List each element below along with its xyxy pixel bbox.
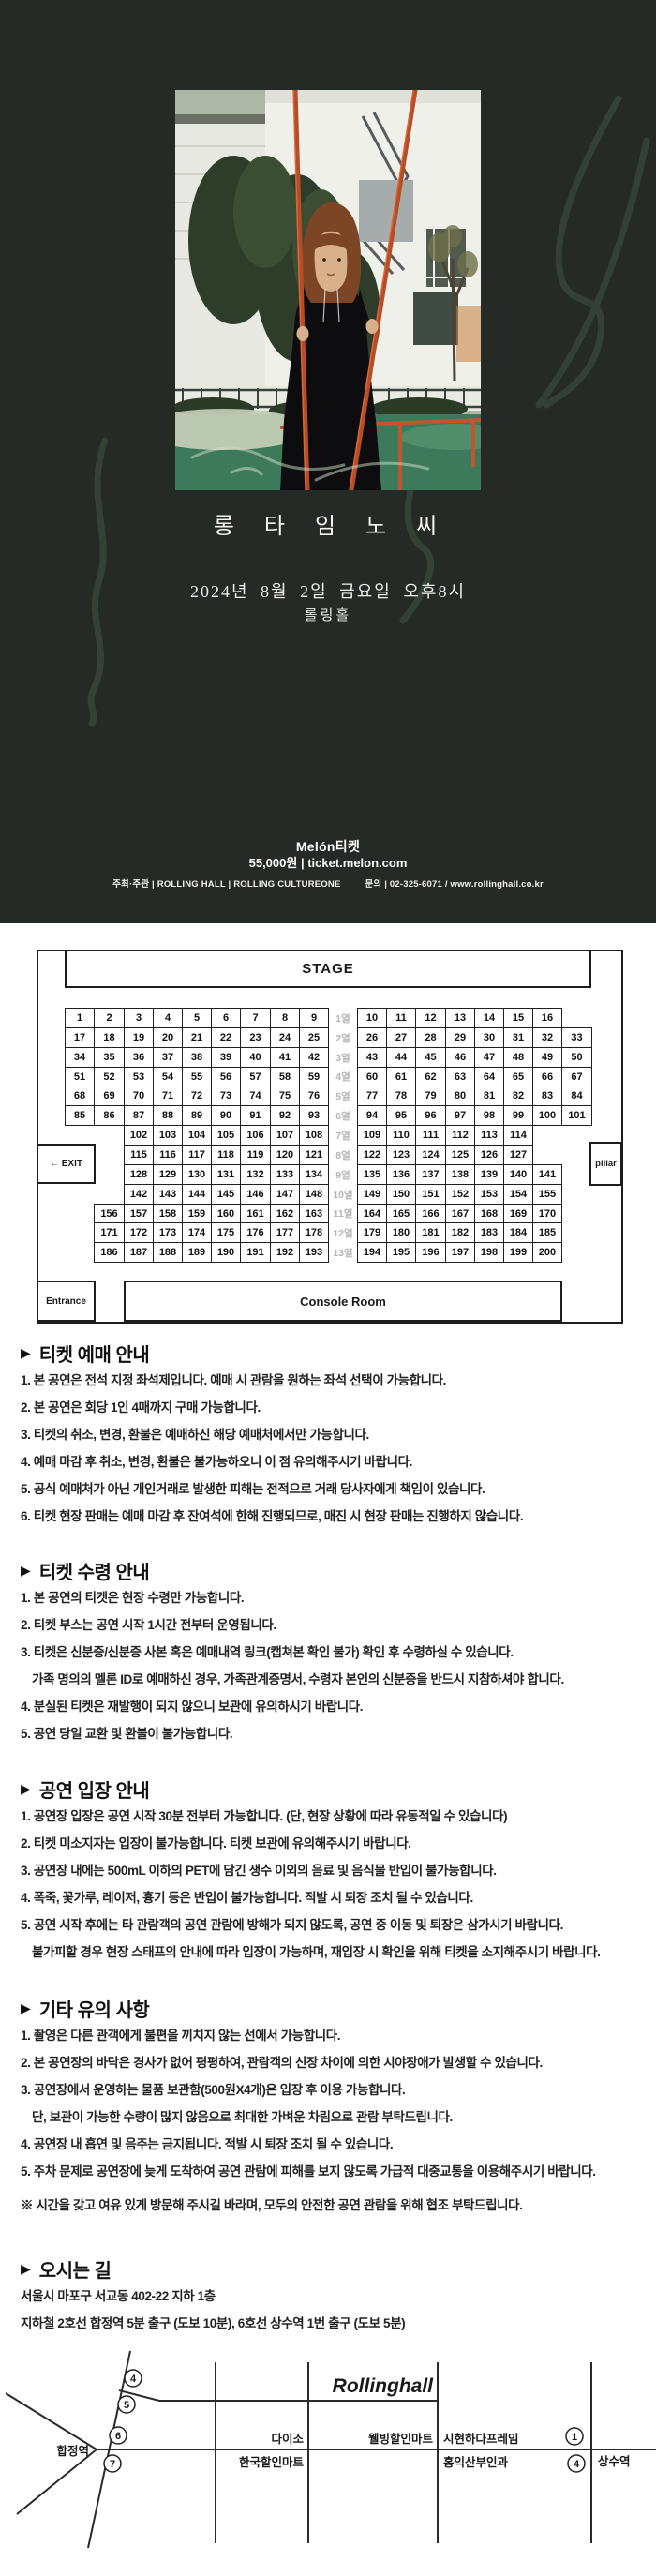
event-title: 롱 타 임 노 씨: [0, 507, 656, 540]
seat-140: 140: [503, 1164, 533, 1185]
poster-photo: [175, 90, 481, 490]
seat-166: 166: [415, 1204, 446, 1223]
seat-74: 74: [240, 1086, 271, 1106]
seat-143: 143: [153, 1184, 183, 1205]
safety-note: ※ 시간을 갖고 여유 있게 방문해 주시길 바라며, 모두의 안전한 공연 관…: [21, 2194, 639, 2213]
seat-58: 58: [270, 1067, 300, 1086]
notice-line: 3. 티켓은 신분증/신분증 사본 혹은 예매내역 링크(캡쳐본 확인 불가) …: [21, 1645, 639, 1660]
seat-2: 2: [94, 1008, 125, 1028]
row-label: 10열: [329, 1184, 357, 1205]
seat-86: 86: [94, 1105, 125, 1126]
seat-17: 17: [65, 1027, 95, 1048]
seat-54: 54: [153, 1067, 183, 1086]
exit-4b-badge: 4: [574, 2459, 580, 2470]
row-label: 7열: [329, 1125, 357, 1146]
seat-182: 182: [445, 1222, 475, 1243]
seat-80: 80: [445, 1086, 475, 1106]
section-header: ▶ 공연 입장 안내: [21, 1777, 639, 1800]
seat-165: 165: [386, 1204, 416, 1223]
seat-30: 30: [474, 1027, 504, 1048]
seat-23: 23: [240, 1027, 271, 1048]
seat-113: 113: [474, 1125, 504, 1146]
seat-173: 173: [153, 1222, 183, 1243]
section-items: 1. 촬영은 다른 관객에게 불편을 끼치지 않는 선에서 가능합니다.2. 본…: [21, 2029, 639, 2179]
seat-5: 5: [182, 1008, 212, 1028]
event-notice-page: 롱 타 임 노 씨 2024년 8월 2일 금요일 오후8시 롤링홀 Melón…: [0, 0, 656, 2576]
section-items: 1. 본 공연의 티켓은 현장 수령만 가능합니다.2. 티켓 부스는 공연 시…: [21, 1591, 639, 1742]
section-directions: ▶ 오시는 길 서울시 마포구 서교동 402-22 지하 1층 지하철 2호선…: [21, 2257, 639, 2344]
station-hapjeong-label: 합정역: [56, 2444, 89, 2458]
seat-161: 161: [240, 1204, 271, 1223]
seat-53: 53: [124, 1067, 154, 1086]
exit-7-badge: 7: [110, 2459, 115, 2470]
seat-106: 106: [240, 1125, 271, 1146]
seat-63: 63: [445, 1067, 475, 1086]
seat-162: 162: [270, 1204, 300, 1223]
seat-25: 25: [299, 1027, 329, 1048]
seat-150: 150: [386, 1184, 416, 1205]
seat-24: 24: [270, 1027, 300, 1048]
seat-49: 49: [532, 1047, 562, 1068]
seat-111: 111: [415, 1125, 446, 1146]
seat-69: 69: [94, 1086, 125, 1106]
seat-59: 59: [299, 1067, 329, 1086]
seat-126: 126: [474, 1145, 504, 1165]
seat-26: 26: [357, 1027, 387, 1048]
seat-183: 183: [474, 1222, 504, 1243]
seat-9: 9: [299, 1008, 329, 1028]
seat-grid: 1234567891열10111213141516171819202122232…: [38, 951, 618, 1318]
poster-hero: 롱 타 임 노 씨 2024년 8월 2일 금요일 오후8시 롤링홀 Melón…: [0, 0, 656, 923]
notice-line: 1. 본 공연은 전석 지정 좌석제입니다. 예매 시 관람을 원하는 좌석 선…: [21, 1373, 639, 1388]
seat-4: 4: [153, 1008, 183, 1028]
seat-136: 136: [386, 1164, 416, 1185]
directions-lines: 서울시 마포구 서교동 402-22 지하 1층 지하철 2호선 합정역 5분 …: [21, 2289, 639, 2331]
section-title: 티켓 예매 안내: [39, 1340, 150, 1367]
seat-174: 174: [182, 1222, 212, 1243]
seat-156: 156: [94, 1204, 125, 1223]
seat-41: 41: [270, 1047, 300, 1068]
seat-3: 3: [124, 1008, 154, 1028]
seat-72: 72: [182, 1086, 212, 1106]
seat-127: 127: [503, 1145, 533, 1165]
seat-76: 76: [299, 1086, 329, 1106]
row-label: 2열: [329, 1027, 357, 1048]
seat-57: 57: [240, 1067, 271, 1086]
seat-122: 122: [357, 1145, 387, 1165]
seat-31: 31: [503, 1027, 533, 1048]
seat-137: 137: [415, 1164, 446, 1185]
seat-102: 102: [124, 1125, 154, 1146]
seat-114: 114: [503, 1125, 533, 1146]
exit-6-badge: 6: [115, 2431, 121, 2442]
notice-line: 2. 티켓 미소지자는 입장이 불가능합니다. 티켓 보관에 유의해주시기 바랍…: [21, 1836, 639, 1851]
seat-90: 90: [211, 1105, 241, 1126]
seat-112: 112: [445, 1125, 475, 1146]
seat-85: 85: [65, 1105, 95, 1126]
seat-11: 11: [386, 1008, 416, 1028]
seat-70: 70: [124, 1086, 154, 1106]
credits-line: 주최·주관 | ROLLING HALL | ROLLING CULTUREON…: [0, 876, 656, 890]
map-roads: [6, 2351, 656, 2548]
seat-62: 62: [415, 1067, 446, 1086]
seat-187: 187: [124, 1242, 154, 1263]
section-other-notices: ▶ 기타 유의 사항 1. 촬영은 다른 관객에게 불편을 끼치지 않는 선에서…: [21, 1997, 639, 2213]
seat-192: 192: [270, 1242, 300, 1263]
section-title: 기타 유의 사항: [39, 1995, 150, 2022]
seat-37: 37: [153, 1047, 183, 1068]
seat-141: 141: [532, 1164, 562, 1185]
notice-line: 3. 공연장 내에는 500mL 이하의 PET에 담긴 생수 이외의 음료 및…: [21, 1864, 639, 1879]
seat-92: 92: [270, 1105, 300, 1126]
section-ticket-booking: ▶ 티켓 예매 안내 1. 본 공연은 전석 지정 좌석제입니다. 예매 시 관…: [21, 1341, 639, 1536]
seat-61: 61: [386, 1067, 416, 1086]
seat-125: 125: [445, 1145, 475, 1165]
seat-134: 134: [299, 1164, 329, 1185]
seat-171: 171: [94, 1222, 125, 1243]
notice-line: 4. 공연장 내 흡연 및 음주는 금지됩니다. 적발 시 퇴장 조치 될 수 …: [21, 2137, 639, 2152]
seat-7: 7: [240, 1008, 271, 1028]
row-label: 8열: [329, 1145, 357, 1165]
seat-189: 189: [182, 1242, 212, 1263]
seat-12: 12: [415, 1008, 446, 1028]
row-label: 9열: [329, 1164, 357, 1185]
section-entry-guide: ▶ 공연 입장 안내 1. 공연장 입장은 공연 시작 30분 전부터 가능합니…: [21, 1777, 639, 1972]
seat-1: 1: [65, 1008, 95, 1028]
triangle-bullet-icon: ▶: [21, 2000, 31, 2016]
seat-110: 110: [386, 1125, 416, 1146]
seat-181: 181: [415, 1222, 446, 1243]
seat-8: 8: [270, 1008, 300, 1028]
credits-contact: 문의 | 02-325-6071 / www.rollinghall.co.kr: [365, 876, 543, 890]
seat-78: 78: [386, 1086, 416, 1106]
section-title: 오시는 길: [39, 2255, 112, 2283]
seat-88: 88: [153, 1105, 183, 1126]
seat-155: 155: [532, 1184, 562, 1205]
row-label: 4열: [329, 1067, 357, 1086]
event-venue: 롤링홀: [0, 605, 656, 624]
landmark-hanguk-mart: 한국할인마트: [239, 2455, 305, 2469]
seat-149: 149: [357, 1184, 387, 1205]
seat-153: 153: [474, 1184, 504, 1205]
seat-77: 77: [357, 1086, 387, 1106]
seat-13: 13: [445, 1008, 475, 1028]
seat-167: 167: [445, 1204, 475, 1223]
seat-45: 45: [415, 1047, 446, 1068]
seat-36: 36: [124, 1047, 154, 1068]
seat-157: 157: [124, 1204, 154, 1223]
seat-40: 40: [240, 1047, 271, 1068]
section-items: 1. 공연장 입장은 공연 시작 30분 전부터 가능합니다. (단, 현장 상…: [21, 1809, 639, 1960]
seat-32: 32: [532, 1027, 562, 1048]
seat-66: 66: [532, 1067, 562, 1086]
seat-198: 198: [474, 1242, 504, 1263]
seat-170: 170: [532, 1204, 562, 1223]
seat-185: 185: [532, 1222, 562, 1243]
seat-120: 120: [270, 1145, 300, 1165]
seat-68: 68: [65, 1086, 95, 1106]
seat-191: 191: [240, 1242, 271, 1263]
notice-line: 1. 촬영은 다른 관객에게 불편을 끼치지 않는 선에서 가능합니다.: [21, 2029, 639, 2044]
notice-line: 2. 티켓 부스는 공연 시작 1시간 전부터 운영됩니다.: [21, 1618, 639, 1633]
seat-139: 139: [474, 1164, 504, 1185]
seat-33: 33: [561, 1027, 592, 1048]
notice-line: 4. 폭죽, 꽃가루, 레이저, 흉기 등은 반입이 불가능합니다. 적발 시 …: [21, 1891, 639, 1906]
seating-chart: STAGE 1234567891열10111213141516171819202…: [37, 950, 623, 1324]
row-label: 13열: [329, 1242, 357, 1263]
seat-168: 168: [474, 1204, 504, 1223]
notice-line: 3. 티켓의 취소, 변경, 환불은 예매하신 해당 예매처에서만 가능합니다.: [21, 1428, 639, 1443]
section-title: 티켓 수령 안내: [39, 1557, 150, 1584]
seat-135: 135: [357, 1164, 387, 1185]
seat-84: 84: [561, 1086, 592, 1106]
exit-4-badge: 4: [130, 2374, 137, 2385]
seat-94: 94: [357, 1105, 387, 1126]
seat-151: 151: [415, 1184, 446, 1205]
seat-186: 186: [94, 1242, 125, 1263]
seat-10: 10: [357, 1008, 387, 1028]
seat-145: 145: [211, 1184, 241, 1205]
seat-180: 180: [386, 1222, 416, 1243]
notice-line: 5. 공연 당일 교환 및 환불이 불가능합니다.: [21, 1727, 639, 1742]
seat-142: 142: [124, 1184, 154, 1205]
seat-152: 152: [445, 1184, 475, 1205]
entrance-box: Entrance: [37, 1281, 96, 1322]
seat-184: 184: [503, 1222, 533, 1243]
seat-16: 16: [532, 1008, 562, 1028]
seat-169: 169: [503, 1204, 533, 1223]
notice-line: 5. 공연 시작 후에는 타 관람객의 공연 관람에 방해가 되지 않도록, 공…: [21, 1918, 639, 1933]
seat-91: 91: [240, 1105, 271, 1126]
seat-105: 105: [211, 1125, 241, 1146]
row-label: 1열: [329, 1008, 357, 1028]
seat-199: 199: [503, 1242, 533, 1263]
section-header: ▶ 기타 유의 사항: [21, 1997, 639, 2019]
seat-14: 14: [474, 1008, 504, 1028]
section-header: ▶ 티켓 예매 안내: [21, 1341, 639, 1364]
seat-132: 132: [240, 1164, 271, 1185]
seat-144: 144: [182, 1184, 212, 1205]
seat-83: 83: [532, 1086, 562, 1106]
seat-194: 194: [357, 1242, 387, 1263]
triangle-bullet-icon: ▶: [21, 1345, 31, 1361]
seat-131: 131: [211, 1164, 241, 1185]
rollinghall-logo: Rollinghall: [333, 2375, 434, 2397]
seat-200: 200: [532, 1242, 562, 1263]
row-label: 6열: [329, 1105, 357, 1126]
seat-195: 195: [386, 1242, 416, 1263]
seat-147: 147: [270, 1184, 300, 1205]
notice-line: 6. 티켓 현장 판매는 예매 마감 후 잔여석에 한해 진행되므로, 매진 시…: [21, 1509, 639, 1524]
seat-50: 50: [561, 1047, 592, 1068]
seat-47: 47: [474, 1047, 504, 1068]
seat-117: 117: [182, 1145, 212, 1165]
seat-103: 103: [153, 1125, 183, 1146]
seat-52: 52: [94, 1067, 125, 1086]
seat-6: 6: [211, 1008, 241, 1028]
notice-line: 5. 주차 문제로 공연장에 늦게 도착하여 공연 관람에 피해를 보지 않도록…: [21, 2164, 639, 2179]
seat-19: 19: [124, 1027, 154, 1048]
seat-109: 109: [357, 1125, 387, 1146]
seat-79: 79: [415, 1086, 446, 1106]
seat-130: 130: [182, 1164, 212, 1185]
seat-178: 178: [299, 1222, 329, 1243]
seat-87: 87: [124, 1105, 154, 1126]
seat-115: 115: [124, 1145, 154, 1165]
seat-124: 124: [415, 1145, 446, 1165]
seat-179: 179: [357, 1222, 387, 1243]
triangle-bullet-icon: ▶: [21, 1781, 31, 1797]
notice-subline: 가족 명의의 멜론 ID로 예매하신 경우, 가족관계증명서, 수령자 본인의 …: [21, 1672, 639, 1687]
seat-101: 101: [561, 1105, 592, 1126]
seat-98: 98: [474, 1105, 504, 1126]
triangle-bullet-icon: ▶: [21, 2261, 31, 2277]
seat-108: 108: [299, 1125, 329, 1146]
seat-160: 160: [211, 1204, 241, 1223]
seat-129: 129: [153, 1164, 183, 1185]
seat-190: 190: [211, 1242, 241, 1263]
section-header: ▶ 오시는 길: [21, 2257, 639, 2280]
seat-43: 43: [357, 1047, 387, 1068]
seat-15: 15: [503, 1008, 533, 1028]
exit-1-badge: 1: [572, 2432, 577, 2443]
notice-line: 3. 공연장에서 운영하는 물품 보관함(500원X4개)은 입장 후 이용 가…: [21, 2083, 639, 2098]
exit-5-badge: 5: [124, 2400, 129, 2411]
seat-82: 82: [503, 1086, 533, 1106]
landmark-daiso: 다이소: [271, 2432, 304, 2446]
seat-73: 73: [211, 1086, 241, 1106]
seat-172: 172: [124, 1222, 154, 1243]
notice-line: 4. 분실된 티켓은 재발행이 되지 않으니 보관에 유의하시기 바랍니다.: [21, 1700, 639, 1715]
location-map: Rollinghall 합정역 상수역 다이소 한국할인마트 웰빙할인마트 시현…: [0, 2344, 656, 2576]
seat-35: 35: [94, 1047, 125, 1068]
seat-46: 46: [445, 1047, 475, 1068]
seat-71: 71: [153, 1086, 183, 1106]
section-title: 공연 입장 안내: [39, 1775, 150, 1803]
section-header: ▶ 티켓 수령 안내: [21, 1559, 639, 1581]
seat-97: 97: [445, 1105, 475, 1126]
notice-line: 1. 공연장 입장은 공연 시작 30분 전부터 가능합니다. (단, 현장 상…: [21, 1809, 639, 1824]
seat-56: 56: [211, 1067, 241, 1086]
seat-197: 197: [445, 1242, 475, 1263]
venue-address: 서울시 마포구 서교동 402-22 지하 1층: [21, 2289, 639, 2304]
seat-100: 100: [532, 1105, 562, 1126]
seat-123: 123: [386, 1145, 416, 1165]
seat-65: 65: [503, 1067, 533, 1086]
notice-subline: 단, 보관이 가능한 수량이 많지 않음으로 최대한 가벼운 차림으로 관람 부…: [21, 2110, 639, 2125]
seat-116: 116: [153, 1145, 183, 1165]
seat-148: 148: [299, 1184, 329, 1205]
seat-27: 27: [386, 1027, 416, 1048]
seat-133: 133: [270, 1164, 300, 1185]
landmark-sihyeon-frame: 시현하다프레임: [443, 2432, 519, 2446]
seat-81: 81: [474, 1086, 504, 1106]
seat-38: 38: [182, 1047, 212, 1068]
section-ticket-pickup: ▶ 티켓 수령 안내 1. 본 공연의 티켓은 현장 수령만 가능합니다.2. …: [21, 1559, 639, 1754]
seat-158: 158: [153, 1204, 183, 1223]
seat-44: 44: [386, 1047, 416, 1068]
seat-21: 21: [182, 1027, 212, 1048]
row-label: 11열: [329, 1204, 357, 1223]
landmark-hongik-clinic: 홍익산부인과: [443, 2455, 509, 2469]
station-sangsu-label: 상수역: [598, 2454, 631, 2468]
seat-67: 67: [561, 1067, 592, 1086]
seat-107: 107: [270, 1125, 300, 1146]
event-datetime: 2024년 8월 2일 금요일 오후8시: [0, 578, 656, 603]
ticket-price-line: 55,000원 | ticket.melon.com: [0, 853, 656, 871]
seat-20: 20: [153, 1027, 183, 1048]
row-label: 12열: [329, 1222, 357, 1243]
seat-163: 163: [299, 1204, 329, 1223]
seat-95: 95: [386, 1105, 416, 1126]
seat-188: 188: [153, 1242, 183, 1263]
poster-photo-art: [175, 90, 481, 490]
seat-99: 99: [503, 1105, 533, 1126]
notice-line: 4. 예매 마감 후 취소, 변경, 환불은 불가능하오니 이 점 유의해주시기…: [21, 1455, 639, 1470]
seat-154: 154: [503, 1184, 533, 1205]
subway-directions: 지하철 2호선 합정역 5분 출구 (도보 10분), 6호선 상수역 1번 출…: [21, 2316, 639, 2331]
row-label: 3열: [329, 1047, 357, 1068]
seat-177: 177: [270, 1222, 300, 1243]
seat-175: 175: [211, 1222, 241, 1243]
notice-line: 5. 공식 예매처가 아닌 개인거래로 발생한 피해는 전적으로 거래 당사자에…: [21, 1482, 639, 1497]
seat-64: 64: [474, 1067, 504, 1086]
seat-29: 29: [445, 1027, 475, 1048]
seat-159: 159: [182, 1204, 212, 1223]
seat-119: 119: [240, 1145, 271, 1165]
notice-line: 2. 본 공연장의 바닥은 경사가 없어 평평하여, 관람객의 신장 차이에 의…: [21, 2056, 639, 2071]
seat-48: 48: [503, 1047, 533, 1068]
pillar-box: pillar: [589, 1142, 622, 1186]
seat-51: 51: [65, 1067, 95, 1086]
seat-96: 96: [415, 1105, 446, 1126]
seat-39: 39: [211, 1047, 241, 1068]
notice-subline: 불가피할 경우 현장 스태프의 안내에 따라 입장이 가능하며, 재입장 시 확…: [21, 1945, 639, 1960]
seat-196: 196: [415, 1242, 446, 1263]
seat-146: 146: [240, 1184, 271, 1205]
notice-line: 1. 본 공연의 티켓은 현장 수령만 가능합니다.: [21, 1591, 639, 1606]
seat-22: 22: [211, 1027, 241, 1048]
console-room-box: Console Room: [124, 1281, 562, 1322]
seat-138: 138: [445, 1164, 475, 1185]
seat-164: 164: [357, 1204, 387, 1223]
triangle-bullet-icon: ▶: [21, 1563, 31, 1579]
seat-34: 34: [65, 1047, 95, 1068]
section-items: 1. 본 공연은 전석 지정 좌석제입니다. 예매 시 관람을 원하는 좌석 선…: [21, 1373, 639, 1524]
exit-box: ← EXIT: [37, 1144, 96, 1184]
seat-128: 128: [124, 1164, 154, 1185]
notice-line: 2. 본 공연은 회당 1인 4매까지 구매 가능합니다.: [21, 1400, 639, 1415]
seat-93: 93: [299, 1105, 329, 1126]
seat-75: 75: [270, 1086, 300, 1106]
seat-193: 193: [299, 1242, 329, 1263]
seat-60: 60: [357, 1067, 387, 1086]
seat-176: 176: [240, 1222, 271, 1243]
seat-89: 89: [182, 1105, 212, 1126]
seat-55: 55: [182, 1067, 212, 1086]
seat-28: 28: [415, 1027, 446, 1048]
seat-18: 18: [94, 1027, 125, 1048]
seat-118: 118: [211, 1145, 241, 1165]
seat-121: 121: [299, 1145, 329, 1165]
seat-104: 104: [182, 1125, 212, 1146]
landmark-wellbeing-mart: 웰빙할인마트: [368, 2432, 434, 2446]
seat-42: 42: [299, 1047, 329, 1068]
credits-hosts: 주최·주관 | ROLLING HALL | ROLLING CULTUREON…: [112, 876, 340, 890]
row-label: 5열: [329, 1086, 357, 1106]
